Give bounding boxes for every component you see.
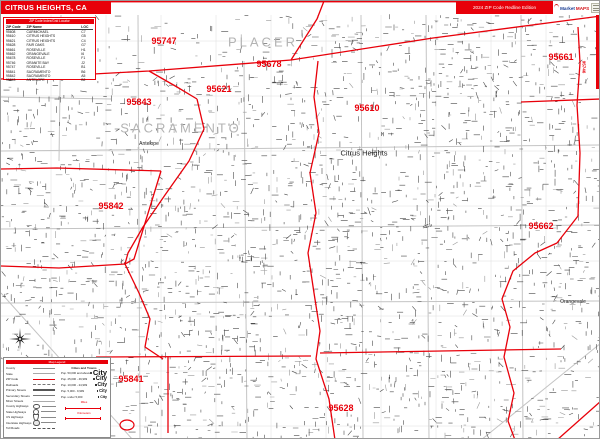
zip-code-wall-map: 9574795678956219584395610956619584295662… bbox=[0, 0, 600, 439]
zip-label: 95662 bbox=[528, 221, 553, 231]
zip-label: 95843 bbox=[126, 97, 151, 107]
legend-item: Interstate Highways bbox=[6, 420, 60, 425]
legend-header: Map Legend bbox=[6, 360, 108, 365]
column-loc: LOC bbox=[81, 25, 93, 29]
legend-item-sample-i-inter bbox=[33, 420, 56, 426]
publisher-logo: Market MAPS bbox=[553, 1, 600, 15]
legend-item-sample-t-state bbox=[33, 373, 56, 374]
city-label: Citrus Heights bbox=[340, 149, 387, 158]
column-zip-code: ZIP Code bbox=[6, 25, 27, 29]
legend-item-sample-t-sec bbox=[33, 395, 56, 396]
i-inter-icon bbox=[33, 420, 40, 426]
legend-item-sample-t-rail bbox=[33, 384, 56, 385]
logo-swoosh-icon bbox=[554, 4, 559, 12]
zip-index-header: ZIP Code Index/Grid Locator bbox=[6, 19, 94, 24]
legend-item-label: State Highways bbox=[6, 410, 33, 414]
scale-kilometers-label: Kilometers bbox=[61, 411, 107, 415]
legend-city-classes: Pop. 50,000 and aboveCityPop. 25,000 - 4… bbox=[61, 370, 107, 400]
city-class-sample: City bbox=[95, 382, 107, 388]
compass-rose-icon bbox=[7, 326, 33, 352]
city-label: Antelope bbox=[139, 141, 159, 147]
zip-index-table: ZIP Code Index/Grid Locator ZIP Code ZIP… bbox=[3, 17, 96, 80]
legend-item-label: Secondary Streets bbox=[6, 394, 33, 398]
legend-item-label: ZIP Code bbox=[6, 377, 33, 381]
logo-text-market: Market bbox=[560, 6, 575, 11]
legend-item-label: Toll Roads bbox=[6, 426, 33, 430]
legend-item-sample-t-county bbox=[33, 368, 56, 369]
scale-kilometers-bar bbox=[65, 417, 101, 420]
legend-item-sample-t-toll bbox=[33, 428, 56, 429]
zip-label: 95661 bbox=[548, 52, 573, 62]
edition-banner: 2024 ZIP Code Redline Edition bbox=[456, 1, 553, 14]
index-zip-name: ANTELOPE bbox=[27, 78, 82, 82]
index-rows: 95608CARMICHAELC795610CITRUS HEIGHTSG595… bbox=[4, 30, 95, 83]
city-class-label: Pop. 10,000 - 24,999 bbox=[61, 383, 87, 387]
scale-miles: Miles bbox=[61, 400, 107, 411]
legend-item-label: County bbox=[6, 366, 33, 370]
city-class-label: Pop. 5,000 - 9,999 bbox=[61, 389, 84, 393]
zip-label: 95841 bbox=[118, 374, 143, 384]
legend-item-label: State bbox=[6, 372, 33, 376]
city-class-label: Pop. under 5,000 bbox=[61, 395, 82, 399]
zip-label: 95678 bbox=[256, 59, 281, 69]
scale-miles-label: Miles bbox=[61, 400, 107, 404]
index-zip-code: 95843 bbox=[6, 78, 27, 82]
city-class-sample: City bbox=[97, 388, 107, 393]
legend-item-label: Primary Streets bbox=[6, 388, 33, 392]
edge-label: 95746 bbox=[582, 61, 587, 74]
legend-item-label: Railroads bbox=[6, 383, 33, 387]
column-zip-name: ZIP Name bbox=[27, 25, 82, 29]
city-class-label: Pop. 25,000 - 49,999 bbox=[61, 377, 87, 381]
city-class-label: Pop. 50,000 and above bbox=[61, 371, 90, 375]
index-row: 95843ANTELOPEB2 bbox=[6, 78, 93, 82]
scale-miles-bar bbox=[65, 407, 101, 410]
zip-label: 95628 bbox=[328, 403, 353, 413]
zip-label: 95842 bbox=[98, 201, 123, 211]
legend-item-label: Interstate Highways bbox=[6, 421, 33, 425]
zip-label: 95610 bbox=[354, 103, 379, 113]
city-label: Orangevale bbox=[560, 299, 586, 305]
scale-kilometers: Kilometers bbox=[61, 411, 107, 422]
logo-address-block bbox=[591, 3, 600, 13]
legend-item-label: County Highways bbox=[6, 404, 33, 408]
county-label: PLACER bbox=[228, 35, 298, 50]
legend-item-sample-t-prim bbox=[33, 389, 56, 390]
county-label: SACRAMENTO bbox=[120, 121, 242, 136]
map-title: CITRUS HEIGHTS, CA bbox=[1, 1, 111, 14]
legend-item-sample-t-zip bbox=[33, 379, 56, 380]
index-loc: B2 bbox=[81, 78, 93, 82]
legend-item-label: Minor Streets bbox=[6, 399, 33, 403]
legend-item: Toll Roads bbox=[6, 425, 60, 430]
city-class-sample: City bbox=[98, 395, 107, 399]
zip-label: 95621 bbox=[206, 84, 231, 94]
city-class-sample: City bbox=[93, 376, 107, 382]
zip-label: 95747 bbox=[151, 36, 176, 46]
logo-text-maps: MAPS bbox=[576, 6, 589, 11]
legend-item-label: US Highways bbox=[6, 415, 33, 419]
legend-item-sample-t-min bbox=[33, 401, 56, 402]
map-legend: Map Legend CountyStateZIP CodeRailroadsP… bbox=[3, 357, 111, 438]
legend-line-items: CountyStateZIP CodeRailroadsPrimary Stre… bbox=[4, 366, 60, 431]
